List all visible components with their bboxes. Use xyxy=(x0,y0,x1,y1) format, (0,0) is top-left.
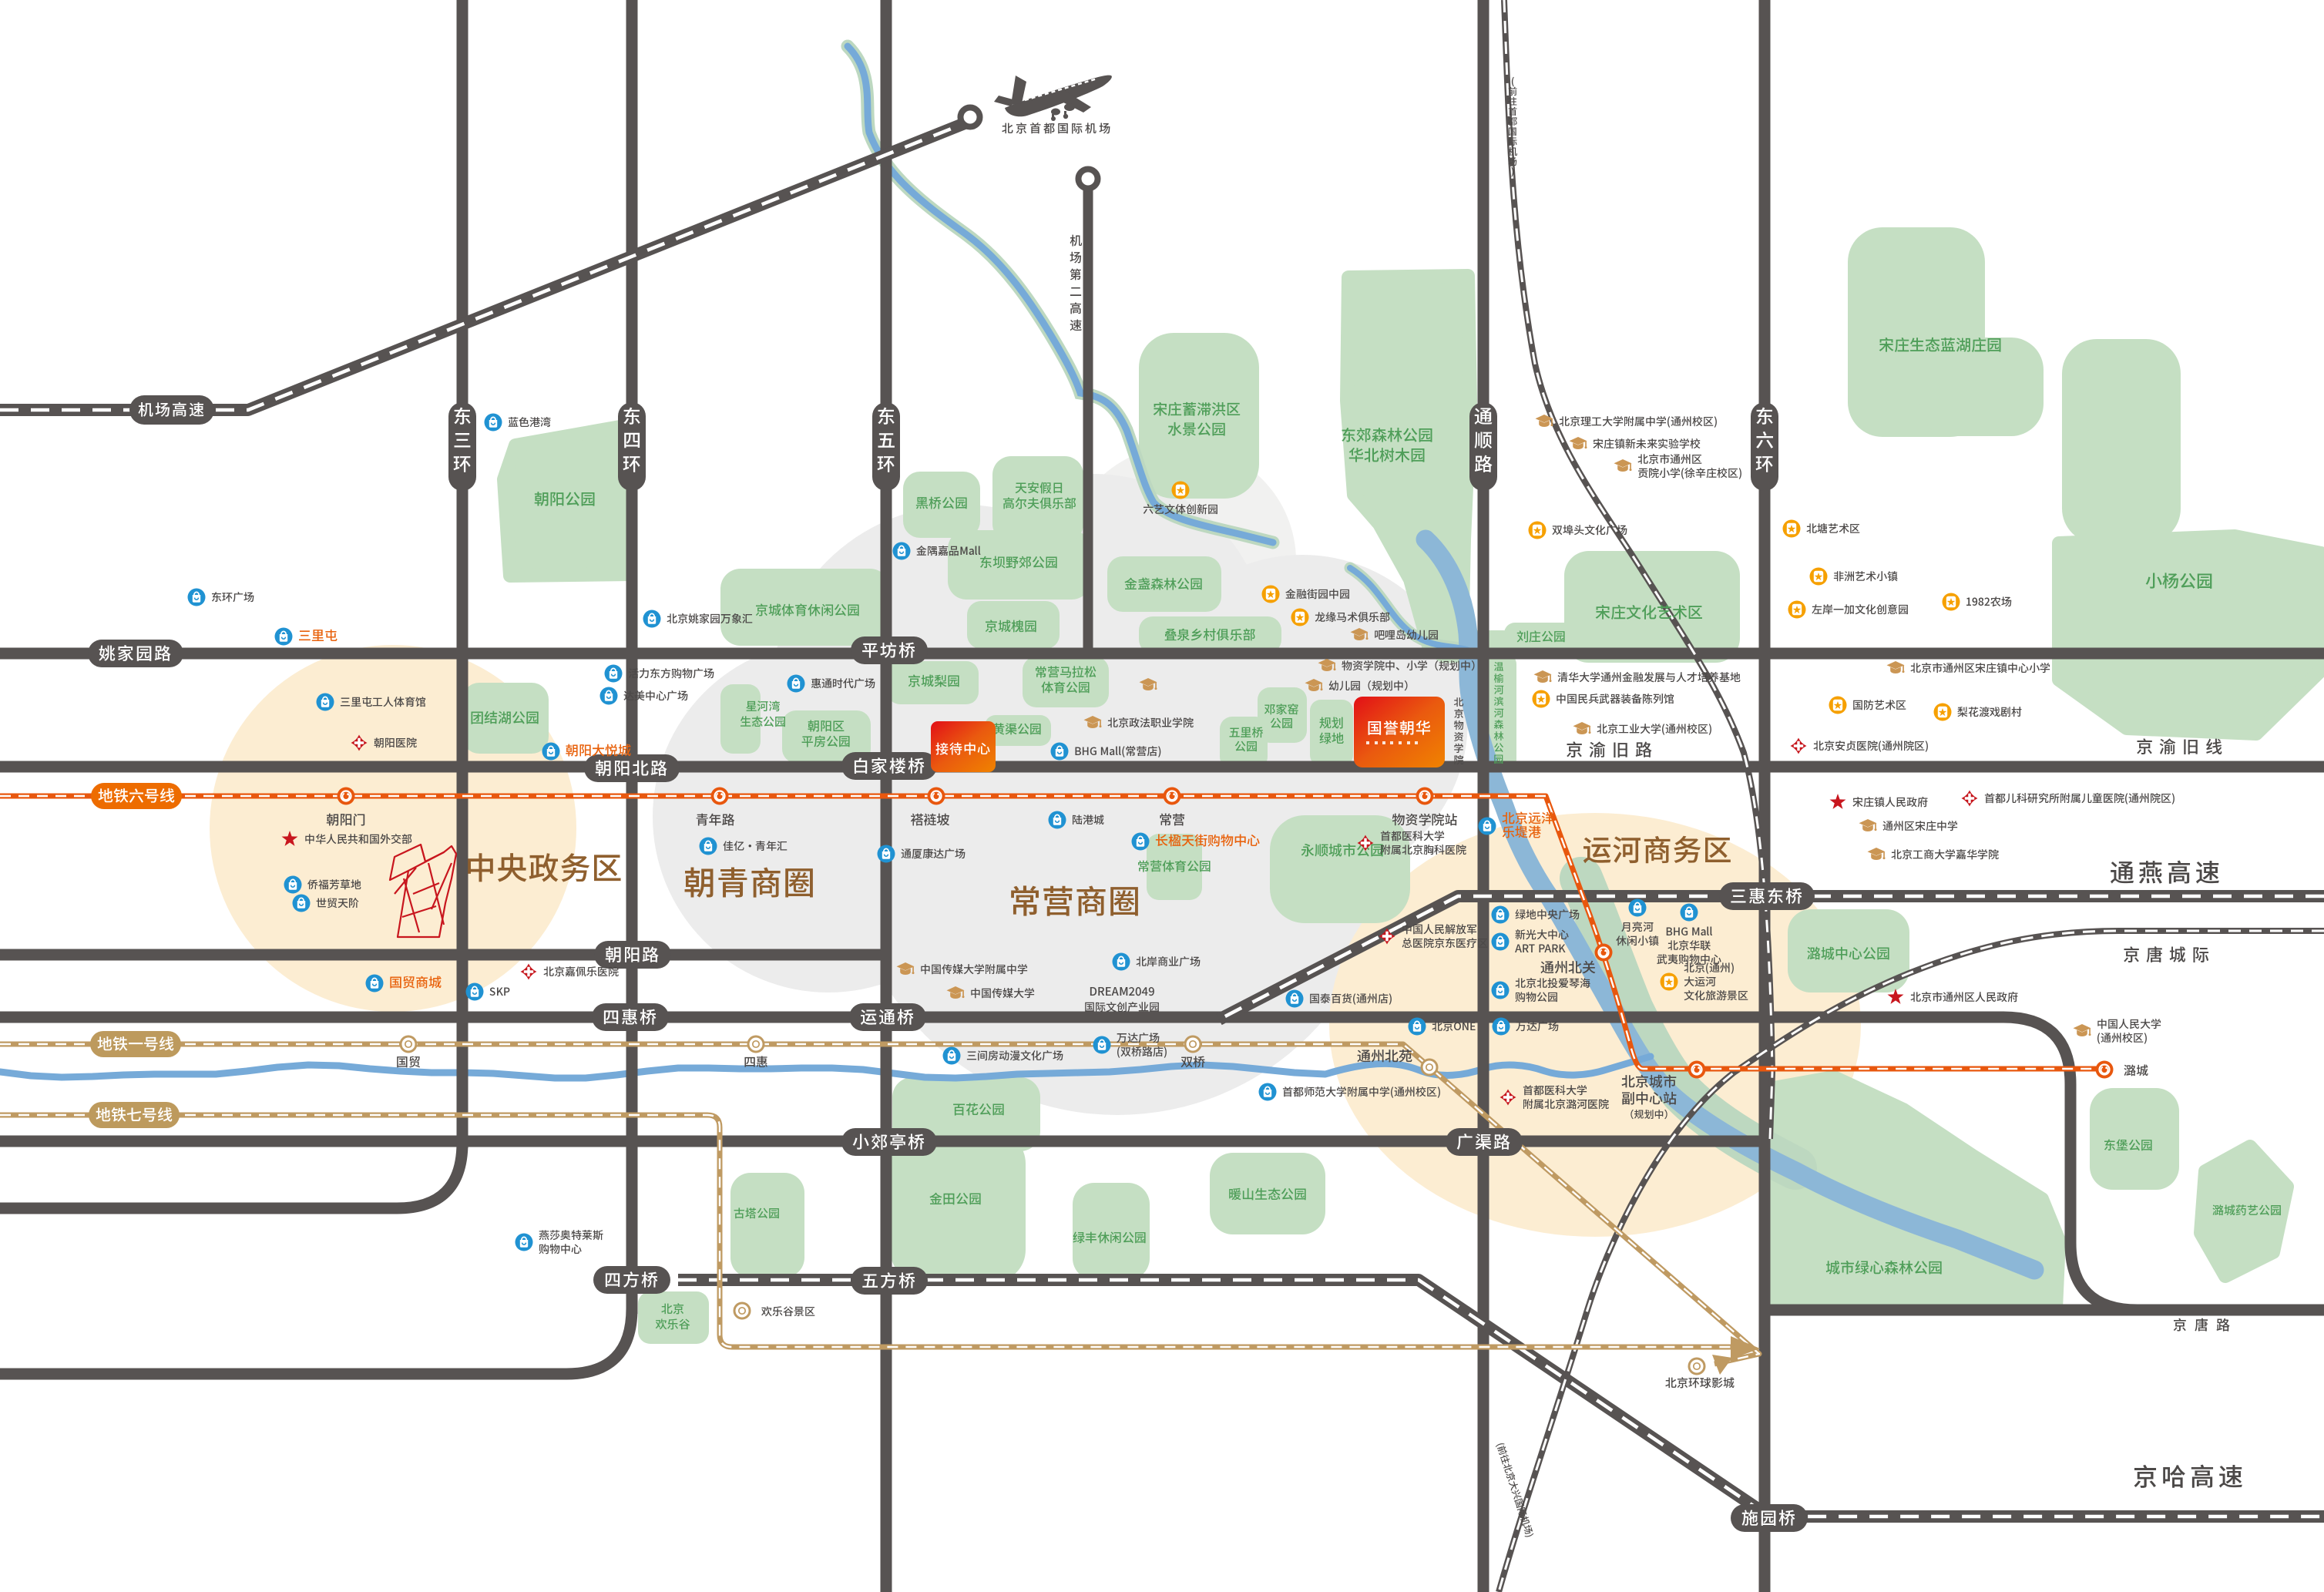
svg-text:国际文创产业园: 国际文创产业园 xyxy=(1084,999,1160,1015)
svg-text:达美中心广场: 达美中心广场 xyxy=(623,688,688,704)
svg-text:高: 高 xyxy=(1070,298,1082,317)
svg-text:京渝旧线: 京渝旧线 xyxy=(2136,734,2228,758)
svg-text:大运河: 大运河 xyxy=(1684,974,1717,989)
svg-text:公园: 公园 xyxy=(1270,715,1293,731)
svg-text:团结湖公园: 团结湖公园 xyxy=(470,707,539,727)
svg-text:幼儿园（规划中）: 幼儿园（规划中） xyxy=(1328,678,1415,694)
svg-text:1982农场: 1982农场 xyxy=(1966,594,2012,610)
svg-text:长楹天街购物中心: 长楹天街购物中心 xyxy=(1155,830,1260,849)
svg-text:潞城药艺公园: 潞城药艺公园 xyxy=(2212,1202,2282,1218)
svg-text:顺: 顺 xyxy=(1474,425,1493,452)
svg-text:东: 东 xyxy=(877,401,895,428)
svg-text:国贸: 国贸 xyxy=(396,1052,421,1070)
svg-text:附属北京潞河医院: 附属北京潞河医院 xyxy=(1523,1097,1610,1112)
svg-text:蓝色港湾: 蓝色港湾 xyxy=(508,415,551,430)
svg-text:北塘艺术区: 北塘艺术区 xyxy=(1806,521,1860,536)
svg-text:乐堤港: 乐堤港 xyxy=(1502,821,1541,841)
svg-text:北京理工大学附属中学(通州校区): 北京理工大学附属中学(通州校区) xyxy=(1559,414,1718,429)
svg-text:华北树木园: 华北树木园 xyxy=(1348,443,1426,465)
svg-text:六艺文体创新园: 六艺文体创新园 xyxy=(1143,502,1218,517)
svg-text:首都师范大学附属中学(通州校区): 首都师范大学附属中学(通州校区) xyxy=(1282,1084,1441,1100)
svg-text:北岸商业广场: 北岸商业广场 xyxy=(1136,954,1201,969)
svg-text:BHG Mall: BHG Mall xyxy=(1665,924,1712,939)
svg-text:绿地: 绿地 xyxy=(1319,728,1344,747)
svg-text:东环广场: 东环广场 xyxy=(211,589,254,605)
svg-text:北京姚家园万象汇: 北京姚家园万象汇 xyxy=(667,611,753,626)
svg-text:星河湾: 星河湾 xyxy=(745,698,780,714)
svg-text:万达广场: 万达广场 xyxy=(1117,1030,1160,1046)
svg-text:东郊森林公园: 东郊森林公园 xyxy=(1341,423,1433,445)
svg-text:通州北关: 通州北关 xyxy=(1540,957,1596,977)
svg-text:小杨公园: 小杨公园 xyxy=(2145,568,2213,593)
svg-text:购物中心: 购物中心 xyxy=(539,1241,582,1257)
svg-text:DREAM2049: DREAM2049 xyxy=(1089,983,1154,999)
svg-text:宋庄文化艺术区: 宋庄文化艺术区 xyxy=(1595,600,1703,623)
svg-text:首都医科大学: 首都医科大学 xyxy=(1523,1083,1587,1098)
svg-text:国防艺术区: 国防艺术区 xyxy=(1852,697,1906,713)
svg-text:京渝旧路: 京渝旧路 xyxy=(1566,737,1658,761)
svg-text:朝阳公园: 朝阳公园 xyxy=(534,487,596,509)
svg-text:北京北投爱琴海: 北京北投爱琴海 xyxy=(1515,976,1590,991)
svg-text:五: 五 xyxy=(877,425,895,452)
svg-text:副中心站: 副中心站 xyxy=(1621,1088,1677,1108)
svg-text:四方桥: 四方桥 xyxy=(604,1267,660,1291)
svg-text:环: 环 xyxy=(623,449,641,476)
svg-text:场: 场 xyxy=(1070,247,1082,266)
svg-text:环: 环 xyxy=(1755,449,1774,476)
svg-text:朝青商圈: 朝青商圈 xyxy=(683,858,816,905)
svg-text:机场高速: 机场高速 xyxy=(138,398,206,420)
svg-text:百花公园: 百花公园 xyxy=(952,1099,1005,1118)
svg-text:欢乐谷景区: 欢乐谷景区 xyxy=(761,1304,815,1319)
svg-text:北京市通州区人民政府: 北京市通州区人民政府 xyxy=(1910,989,2018,1005)
svg-text:SKP: SKP xyxy=(489,984,510,999)
svg-text:城市绿心森林公园: 城市绿心森林公园 xyxy=(1825,1257,1943,1278)
svg-text:清华大学通州金融发展与人才培养基地: 清华大学通州金融发展与人才培养基地 xyxy=(1557,670,1741,685)
svg-text:中国民兵武器装备陈列馆: 中国民兵武器装备陈列馆 xyxy=(1556,691,1674,707)
svg-text:东: 东 xyxy=(623,401,641,428)
svg-text:国誉朝华: 国誉朝华 xyxy=(1367,716,1432,738)
svg-text:国泰百货(通州店): 国泰百货(通州店) xyxy=(1309,991,1392,1006)
svg-text:附属北京胸科医院: 附属北京胸科医院 xyxy=(1380,842,1467,858)
svg-text:宋庄蓄滞洪区: 宋庄蓄滞洪区 xyxy=(1153,398,1241,419)
svg-text:广渠路: 广渠路 xyxy=(1456,1129,1512,1154)
svg-text:龙缘马术俱乐部: 龙缘马术俱乐部 xyxy=(1315,610,1390,625)
svg-text:运河商务区: 运河商务区 xyxy=(1582,827,1732,869)
svg-text:物资学院中、小学（规划中）: 物资学院中、小学（规划中） xyxy=(1342,658,1482,673)
svg-text:北京市通州区: 北京市通州区 xyxy=(1637,452,1702,467)
svg-text:陆港城: 陆港城 xyxy=(1072,812,1104,828)
svg-text:青年路: 青年路 xyxy=(696,809,735,828)
svg-text:四惠桥: 四惠桥 xyxy=(603,1004,658,1029)
svg-text:首都儿科研究所附属儿童医院(通州院区): 首都儿科研究所附属儿童医院(通州院区) xyxy=(1984,791,2175,806)
svg-text:佳亿·青年汇: 佳亿·青年汇 xyxy=(723,838,788,854)
svg-text:东堡公园: 东堡公园 xyxy=(2104,1135,2153,1154)
svg-text:梨花渡戏剧村: 梨花渡戏剧村 xyxy=(1957,704,2022,720)
svg-text:绿丰休闲公园: 绿丰休闲公园 xyxy=(1073,1228,1147,1246)
svg-text:文化旅游景区: 文化旅游景区 xyxy=(1684,988,1748,1003)
svg-text:东坝野郊公园: 东坝野郊公园 xyxy=(979,552,1058,571)
svg-text:北京市通州区宋庄镇中心小学: 北京市通州区宋庄镇中心小学 xyxy=(1910,660,2050,676)
svg-text:朝阳大悦城: 朝阳大悦城 xyxy=(566,740,631,759)
svg-text:宋庄镇新未来实验学校: 宋庄镇新未来实验学校 xyxy=(1593,436,1701,452)
svg-text:水景公园: 水景公园 xyxy=(1167,418,1226,439)
svg-text:三里屯工人体育馆: 三里屯工人体育馆 xyxy=(340,694,426,710)
svg-text:北京: 北京 xyxy=(661,1301,684,1317)
svg-text:京哈高速: 京哈高速 xyxy=(2133,1458,2247,1493)
svg-text:金隅嘉品Mall: 金隅嘉品Mall xyxy=(916,543,981,559)
svg-text:中国传媒大学附属中学: 中国传媒大学附属中学 xyxy=(920,962,1028,977)
svg-text:总医院京东医疗区: 总医院京东医疗区 xyxy=(1402,935,1488,951)
svg-text:中国人民解放军: 中国人民解放军 xyxy=(1402,922,1477,937)
svg-text:金田公园: 金田公园 xyxy=(929,1188,982,1207)
svg-text:万达广场: 万达广场 xyxy=(1516,1019,1559,1034)
svg-text:京唐路: 京唐路 xyxy=(2173,1315,2238,1335)
svg-text:古塔公园: 古塔公园 xyxy=(734,1205,780,1221)
svg-text:六: 六 xyxy=(1755,425,1774,452)
svg-text:三里屯: 三里屯 xyxy=(298,625,338,644)
svg-text:三惠东桥: 三惠东桥 xyxy=(1730,883,1804,908)
svg-text:金融街园中园: 金融街园中园 xyxy=(1285,586,1350,602)
svg-text:三间房动漫文化广场: 三间房动漫文化广场 xyxy=(966,1048,1063,1063)
svg-text:中国传媒大学: 中国传媒大学 xyxy=(970,986,1035,1001)
svg-text:高尔夫俱乐部: 高尔夫俱乐部 xyxy=(1002,493,1076,512)
svg-text:宋庄镇人民政府: 宋庄镇人民政府 xyxy=(1852,794,1928,810)
svg-text:刘庄公园: 刘庄公园 xyxy=(1516,626,1566,645)
svg-text:北京安贞医院(通州院区): 北京安贞医院(通州院区) xyxy=(1813,738,1929,754)
svg-text:北京工商大学嘉华学院: 北京工商大学嘉华学院 xyxy=(1891,847,2000,862)
svg-text:（规划中）: （规划中） xyxy=(1624,1107,1674,1121)
svg-text:地铁一号线: 地铁一号线 xyxy=(97,1032,174,1054)
svg-text:潞城: 潞城 xyxy=(2124,1060,2149,1079)
svg-text:贡院小学(徐辛庄校区): 贡院小学(徐辛庄校区) xyxy=(1637,465,1742,481)
svg-text:二: 二 xyxy=(1070,281,1082,300)
svg-text:叠泉乡村俱乐部: 叠泉乡村俱乐部 xyxy=(1164,624,1256,643)
svg-text:四: 四 xyxy=(623,425,641,452)
svg-text:非洲艺术小镇: 非洲艺术小镇 xyxy=(1833,569,1898,584)
svg-text:(通州校区): (通州校区) xyxy=(2097,1030,2148,1046)
svg-text:北京政法职业学院: 北京政法职业学院 xyxy=(1107,715,1194,731)
svg-text:双桥: 双桥 xyxy=(1180,1052,1205,1070)
svg-text:院: 院 xyxy=(1453,752,1464,767)
svg-text:东: 东 xyxy=(453,401,472,428)
svg-text:暖山生态公园: 暖山生态公园 xyxy=(1228,1184,1307,1203)
svg-text:施园桥: 施园桥 xyxy=(1741,1505,1797,1530)
svg-text:北京(通州): 北京(通州) xyxy=(1684,960,1735,976)
svg-text:机: 机 xyxy=(1070,230,1083,249)
svg-text:第: 第 xyxy=(1070,264,1082,283)
svg-text:接待中心: 接待中心 xyxy=(935,738,991,757)
svg-text:中央政务区: 中央政务区 xyxy=(465,844,623,888)
svg-text:国贸商城: 国贸商城 xyxy=(389,972,442,991)
svg-text:地铁七号线: 地铁七号线 xyxy=(96,1103,173,1125)
svg-text:运通桥: 运通桥 xyxy=(860,1004,915,1029)
svg-text:平坊桥: 平坊桥 xyxy=(861,637,917,662)
svg-text:环: 环 xyxy=(877,449,895,476)
svg-text:褡裢坡: 褡裢坡 xyxy=(911,809,950,828)
svg-text:黑桥公园: 黑桥公园 xyxy=(915,492,968,512)
svg-text:京城体育休闲公园: 京城体育休闲公园 xyxy=(755,600,860,619)
svg-text:中华人民共和国外交部: 中华人民共和国外交部 xyxy=(304,831,412,847)
svg-text:通燕高速: 通燕高速 xyxy=(2110,854,2224,889)
svg-text:中国人民大学: 中国人民大学 xyxy=(2097,1016,2161,1032)
svg-text:黄渠公园: 黄渠公园 xyxy=(992,719,1042,737)
svg-text:环: 环 xyxy=(453,449,472,476)
svg-text:ART PARK: ART PARK xyxy=(1515,941,1565,956)
svg-text:侨福芳草地: 侨福芳草地 xyxy=(307,877,361,892)
svg-text:惠通时代广场: 惠通时代广场 xyxy=(811,676,875,691)
svg-text:路: 路 xyxy=(1474,449,1493,476)
svg-text:北京首都国际机场: 北京首都国际机场 xyxy=(1002,120,1113,136)
svg-text:购物公园: 购物公园 xyxy=(1515,989,1558,1005)
svg-text:朝阳路: 朝阳路 xyxy=(605,942,660,966)
svg-text:东: 东 xyxy=(1755,401,1774,428)
svg-text:宋庄生态蓝湖庄园: 宋庄生态蓝湖庄园 xyxy=(1879,333,2002,355)
svg-text:新光大中心: 新光大中心 xyxy=(1515,927,1569,942)
svg-text:北京工业大学(通州校区): 北京工业大学(通州校区) xyxy=(1597,721,1712,737)
svg-text:小郊亭桥: 小郊亭桥 xyxy=(852,1129,926,1154)
svg-text:北京环球影城: 北京环球影城 xyxy=(1665,1375,1735,1391)
svg-text:左岸一加文化创意园: 左岸一加文化创意园 xyxy=(1812,602,1909,617)
svg-text:吧哩岛幼儿园: 吧哩岛幼儿园 xyxy=(1374,627,1439,643)
svg-text:北京嘉佩乐医院: 北京嘉佩乐医院 xyxy=(543,964,620,979)
svg-text:绿地中央广场: 绿地中央广场 xyxy=(1515,907,1580,922)
svg-text:四惠: 四惠 xyxy=(744,1052,768,1070)
svg-text:BHG Mall(常营店): BHG Mall(常营店) xyxy=(1074,744,1161,759)
svg-text:活力东方购物广场: 活力东方购物广场 xyxy=(628,666,714,681)
svg-text:月亮河: 月亮河 xyxy=(1620,919,1654,935)
svg-text:白家楼桥: 白家楼桥 xyxy=(852,753,926,778)
svg-text:京城槐园: 京城槐园 xyxy=(985,616,1037,635)
svg-text:通州北苑: 通州北苑 xyxy=(1357,1046,1412,1066)
svg-text:燕莎奥特莱斯: 燕莎奥特莱斯 xyxy=(539,1228,603,1243)
svg-text:世贸天阶: 世贸天阶 xyxy=(316,895,359,911)
svg-text:北京华联: 北京华联 xyxy=(1667,938,1711,953)
svg-text:北京ONE: 北京ONE xyxy=(1432,1019,1476,1034)
svg-text:三: 三 xyxy=(453,425,472,452)
svg-text:速: 速 xyxy=(1070,315,1082,334)
svg-text:朝阳医院: 朝阳医院 xyxy=(374,735,418,751)
svg-text:潞城中心公园: 潞城中心公园 xyxy=(1807,943,1890,963)
svg-text:物资学院站: 物资学院站 xyxy=(1392,809,1458,828)
svg-text:欢乐谷: 欢乐谷 xyxy=(655,1316,690,1332)
svg-text:地铁六号线: 地铁六号线 xyxy=(98,784,175,806)
svg-text:公园: 公园 xyxy=(1234,738,1258,754)
svg-text:通厦康达广场: 通厦康达广场 xyxy=(901,846,966,861)
svg-text:双埠头文化广场: 双埠头文化广场 xyxy=(1552,522,1627,538)
svg-text:常营商圈: 常营商圈 xyxy=(1009,876,1141,923)
svg-text:京唐城际: 京唐城际 xyxy=(2123,942,2215,966)
svg-text:休闲小镇: 休闲小镇 xyxy=(1616,933,1659,949)
svg-text:体育公园: 体育公园 xyxy=(1041,677,1090,696)
svg-text:平房公园: 平房公园 xyxy=(801,731,851,750)
svg-text:五方桥: 五方桥 xyxy=(861,1268,917,1292)
svg-text:常营体育公园: 常营体育公园 xyxy=(1137,856,1211,875)
svg-text:朝阳门: 朝阳门 xyxy=(327,809,366,828)
svg-text:姚家园路: 姚家园路 xyxy=(99,640,173,665)
svg-text:(双桥路店): (双桥路店) xyxy=(1117,1044,1167,1060)
svg-text:通: 通 xyxy=(1474,401,1493,428)
svg-text:金盏森林公园: 金盏森林公园 xyxy=(1124,573,1203,593)
svg-text:通州区宋庄中学: 通州区宋庄中学 xyxy=(1882,818,1958,834)
svg-text:常营: 常营 xyxy=(1159,809,1185,828)
svg-text:): ) xyxy=(1511,165,1514,178)
svg-text:生态公园: 生态公园 xyxy=(740,714,786,730)
svg-text:京城梨园: 京城梨园 xyxy=(908,670,960,690)
svg-text:首都医科大学: 首都医科大学 xyxy=(1380,828,1445,844)
svg-text:园: 园 xyxy=(1493,751,1503,766)
